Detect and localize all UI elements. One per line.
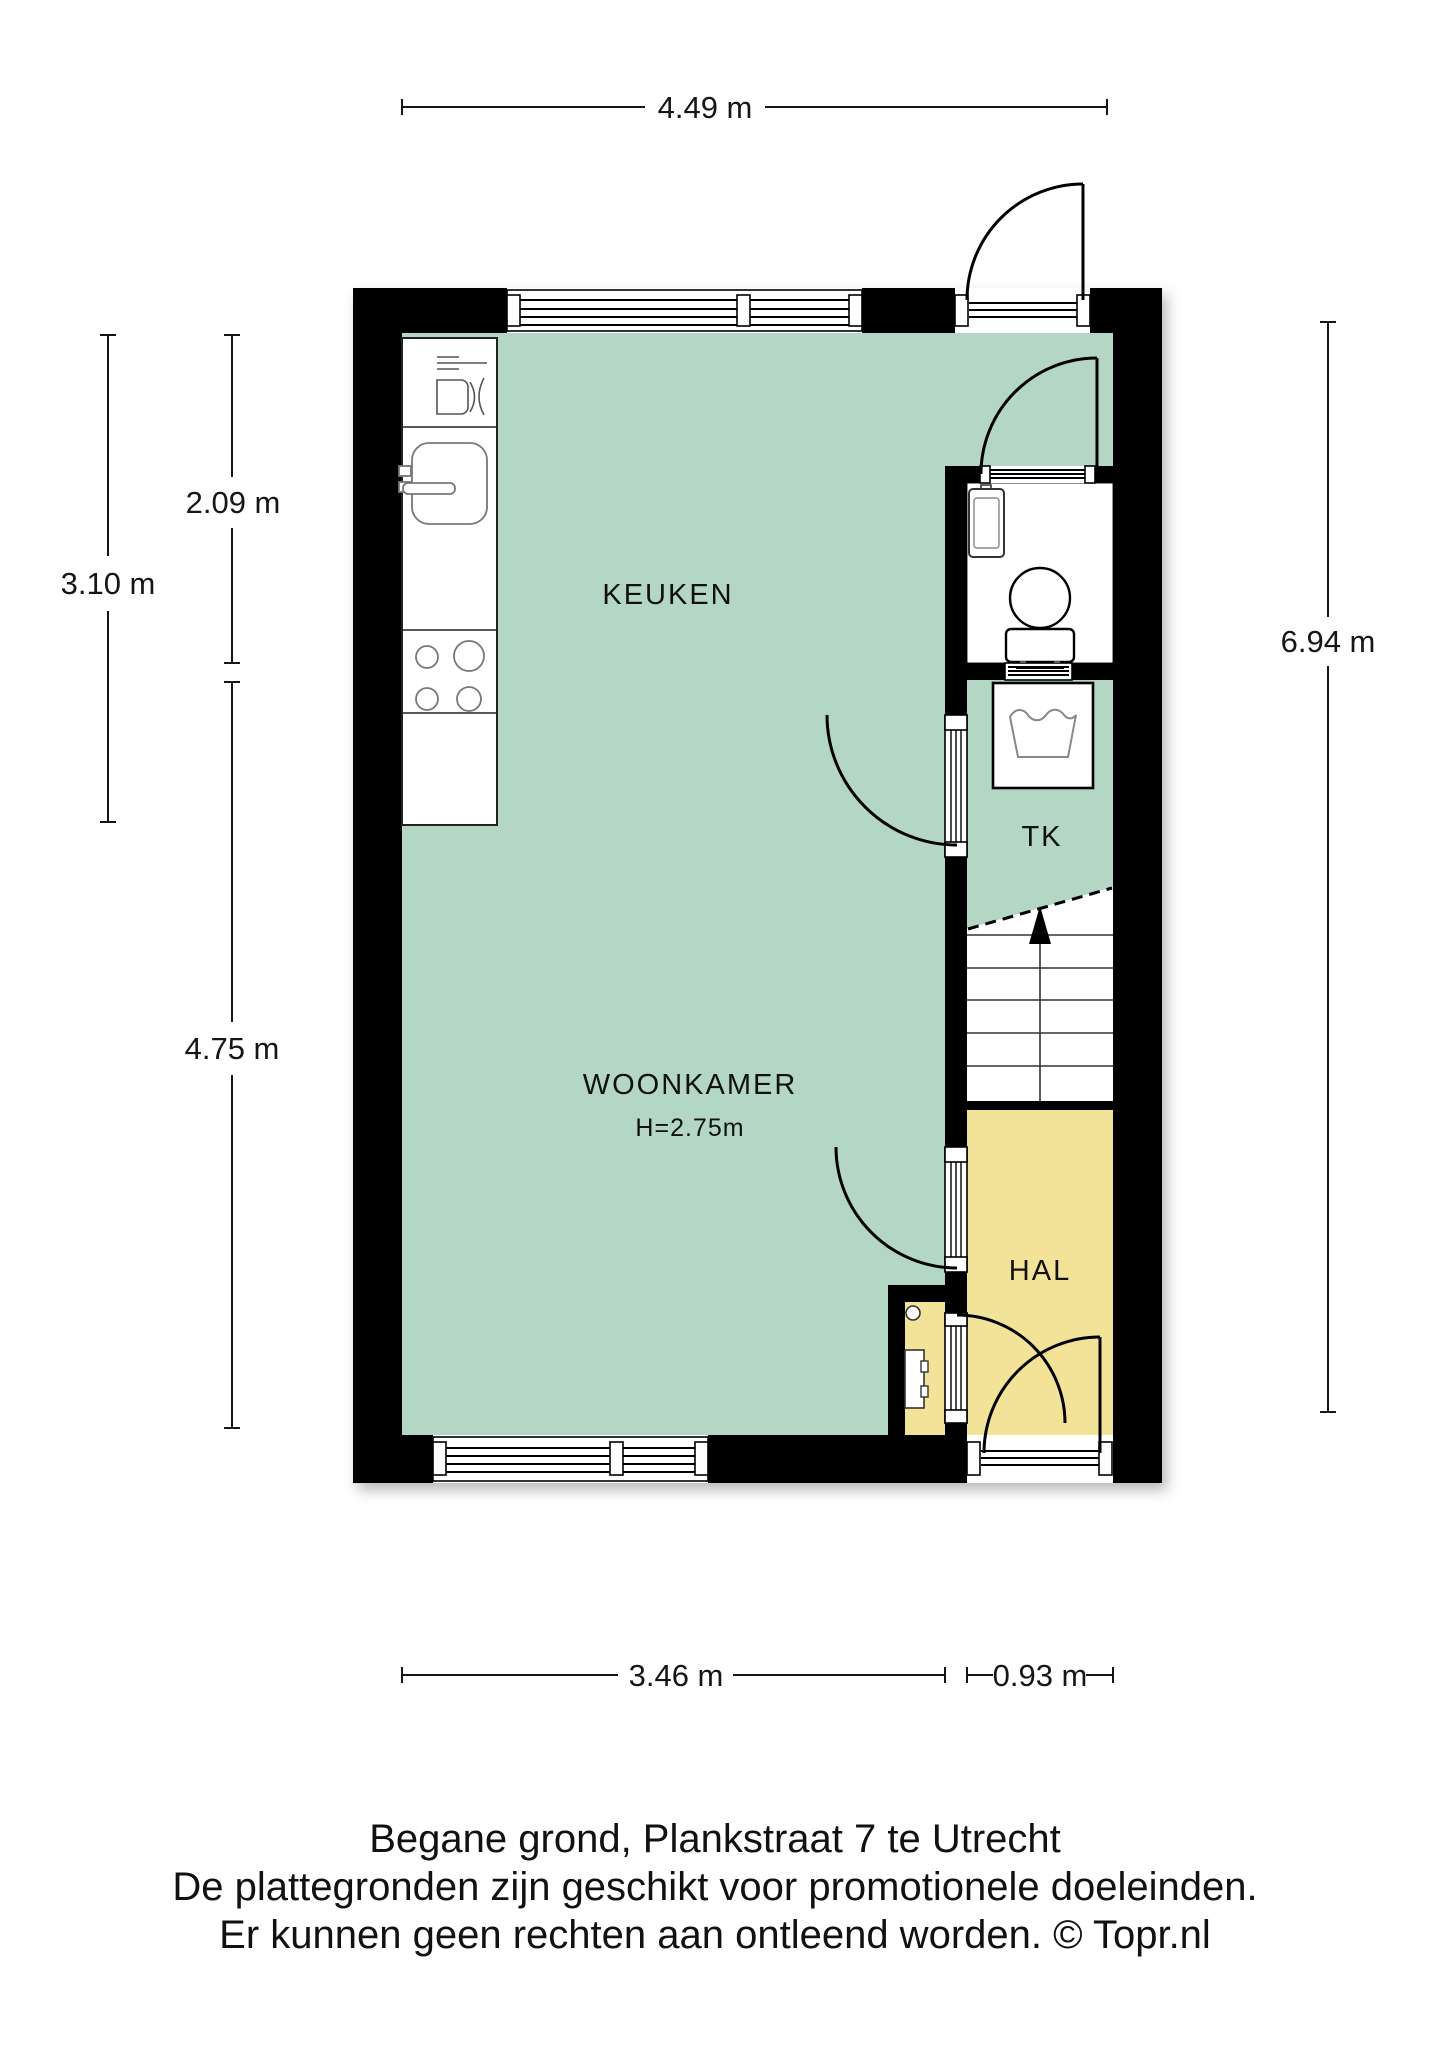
window-top — [507, 290, 862, 331]
caption-disclaimer-1: De plattegronden zijn geschikt voor prom… — [172, 1865, 1257, 1909]
woonkamer-label: WOONKAMER — [583, 1069, 798, 1101]
meter-unit-icon — [905, 1350, 924, 1408]
wall-left — [353, 288, 402, 1483]
tk-label: TK — [1021, 821, 1062, 853]
wall-meterkast-top — [888, 1285, 967, 1302]
hand-basin-icon — [969, 485, 1004, 557]
washing-machine-icon — [993, 683, 1093, 788]
entry-strip-floor — [945, 333, 1113, 466]
wall-top-right — [1090, 288, 1120, 333]
dimension-bottom-hall-width: 0.93 m — [967, 1658, 1113, 1693]
dimension-upper-left-height: 3.10 m — [61, 335, 156, 822]
dimension-lower-left-height: 4.75 m — [185, 682, 280, 1428]
hal-label: HAL — [1009, 1255, 1071, 1287]
wall-bottom-left — [353, 1435, 433, 1483]
dimension-top-width: 4.49 m — [402, 90, 1107, 125]
stairs-bottom-edge — [967, 1101, 1113, 1110]
dim-right-label: 6.94 m — [1281, 624, 1376, 659]
dimension-bottom-living-width: 3.46 m — [402, 1658, 945, 1693]
toilet-vent-window — [1005, 663, 1072, 680]
dim-kitchen-depth-label: 2.09 m — [186, 485, 281, 520]
sink-icon — [399, 443, 487, 524]
wall-top-left — [353, 288, 507, 333]
floor-plan: KEUKEN WOONKAMER H=2.75m TK HAL 4.49 m 2… — [0, 0, 1447, 2048]
wall-partition-mid — [945, 857, 967, 1147]
dim-top-label: 4.49 m — [658, 90, 753, 125]
dimension-right-height: 6.94 m — [1281, 322, 1376, 1412]
wall-toilet-top-left — [967, 466, 980, 483]
dim-upper-left-label: 3.10 m — [61, 566, 156, 601]
wall-bottom-mid — [708, 1435, 967, 1483]
wall-meterkast-left — [888, 1302, 905, 1435]
toilet-icon — [1006, 568, 1074, 668]
dimension-kitchen-depth: 2.09 m — [186, 335, 281, 663]
caption-title: Begane grond, Plankstraat 7 te Utrecht — [369, 1817, 1061, 1861]
dim-bottom-living-label: 3.46 m — [629, 1658, 724, 1693]
kitchen-counter — [399, 338, 497, 825]
wall-right — [1113, 288, 1162, 1483]
dim-lower-left-label: 4.75 m — [185, 1031, 280, 1066]
meter-unit-detail — [921, 1361, 928, 1372]
keuken-label: KEUKEN — [602, 579, 733, 611]
back-door-arc — [967, 184, 1083, 300]
back-door — [955, 184, 1090, 331]
wall-partition-foot — [945, 1423, 967, 1435]
meter-knob-icon — [906, 1306, 920, 1320]
caption-disclaimer-2: Er kunnen geen rechten aan ontleend word… — [219, 1913, 1211, 1957]
dim-bottom-hall-label: 0.93 m — [993, 1658, 1088, 1693]
meter-unit-detail — [921, 1386, 928, 1397]
wall-top-mid — [862, 288, 955, 333]
window-bottom — [433, 1437, 708, 1481]
woonkamer-height-label: H=2.75m — [635, 1114, 744, 1142]
